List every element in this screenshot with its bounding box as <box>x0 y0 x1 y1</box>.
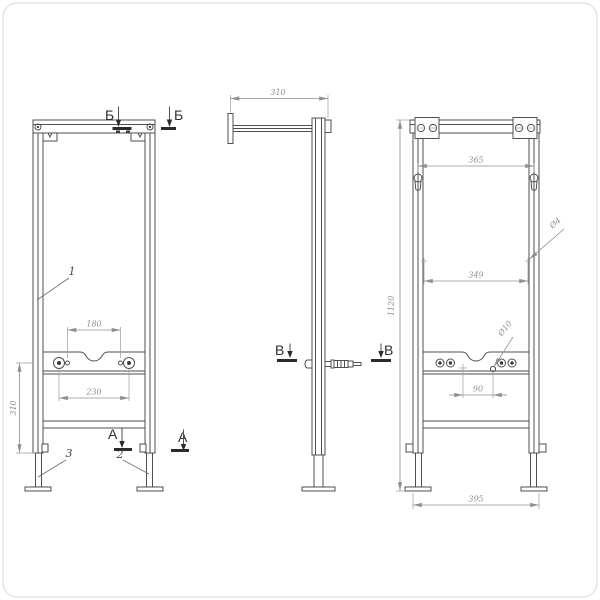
front-dim-230-text: 230 <box>85 388 101 397</box>
side-dim-depth: 310 <box>231 88 329 118</box>
side-threaded-rod <box>305 360 361 368</box>
side-view: 310 В В <box>228 88 393 491</box>
side-foot-plate <box>302 487 335 491</box>
technical-drawing-canvas: 180 230 310 Б Б А <box>0 0 600 600</box>
callout-1-text: 1 <box>69 265 76 278</box>
rear-wall-bracket-right <box>513 118 537 139</box>
section-a-letter-1: А <box>108 426 118 442</box>
rear-dim-349-text: 349 <box>468 271 483 280</box>
card-border <box>3 3 597 597</box>
rear-foot-plate-right <box>521 487 547 491</box>
front-lower-bar <box>43 421 145 428</box>
rear-leg-lock-left <box>406 444 413 452</box>
rear-hole-10-label: Ø10 <box>496 319 514 339</box>
rear-hole-4-label: Ø4 <box>547 216 562 231</box>
rear-legs <box>405 444 547 491</box>
section-b-letter-2: Б <box>174 107 183 123</box>
front-foot-plate-left <box>25 487 51 491</box>
side-section-v-marks: В В <box>275 342 393 361</box>
rear-dim-90-text: 90 <box>473 385 483 394</box>
front-foot-plate-right <box>137 487 163 491</box>
rear-frame <box>410 118 540 454</box>
section-b-letter-1: Б <box>105 107 114 123</box>
rear-dim-height: 1120 <box>387 120 410 491</box>
front-dim-180-text: 180 <box>86 320 101 329</box>
callout-2-text: 2 <box>116 448 124 461</box>
rear-dim-slot-spacing: 365 <box>418 156 534 173</box>
rear-leg-lock-right <box>539 444 546 452</box>
rear-dim-hole-offset: 90 <box>449 372 507 398</box>
callout-3-text: 3 <box>66 447 73 460</box>
side-top-bracket <box>325 120 331 133</box>
front-leg-lock-left <box>42 444 48 452</box>
rear-dim-width: 395 <box>413 493 539 509</box>
rear-wall-bracket-left <box>415 118 439 139</box>
front-frame <box>33 120 155 453</box>
side-wall-flange <box>228 114 233 144</box>
rear-dim-365-text: 365 <box>468 156 483 165</box>
front-view: 180 230 310 Б Б А <box>9 107 189 491</box>
rear-view: 365 349 Ø4 Ø10 90 395 <box>387 118 564 510</box>
side-foot <box>302 455 335 491</box>
front-corner-bracket-left <box>43 133 57 141</box>
rear-crossbar-assembly <box>423 352 529 374</box>
rear-foot-plate-left <box>405 487 431 491</box>
side-wall-arm <box>228 114 312 144</box>
rear-dim-1120-text: 1120 <box>387 296 396 316</box>
drawing-card: 180 230 310 Б Б А <box>0 0 600 600</box>
front-leg-lock-right <box>140 444 146 452</box>
rear-lower-bar <box>423 421 529 428</box>
rear-dim-hole-spacing: 349 <box>424 264 528 284</box>
section-v-letter-2: В <box>384 342 393 358</box>
front-legs <box>25 444 163 491</box>
front-dim-310-text: 310 <box>9 400 18 415</box>
front-crossbar-assembly <box>43 352 145 374</box>
side-dim-310-text: 310 <box>270 88 285 97</box>
front-corner-bracket-right <box>131 133 145 141</box>
rear-dim-395-text: 395 <box>468 495 483 504</box>
side-post <box>312 118 331 455</box>
front-dim-lower-height: 310 <box>9 363 35 453</box>
section-v-letter-1: В <box>275 342 284 358</box>
